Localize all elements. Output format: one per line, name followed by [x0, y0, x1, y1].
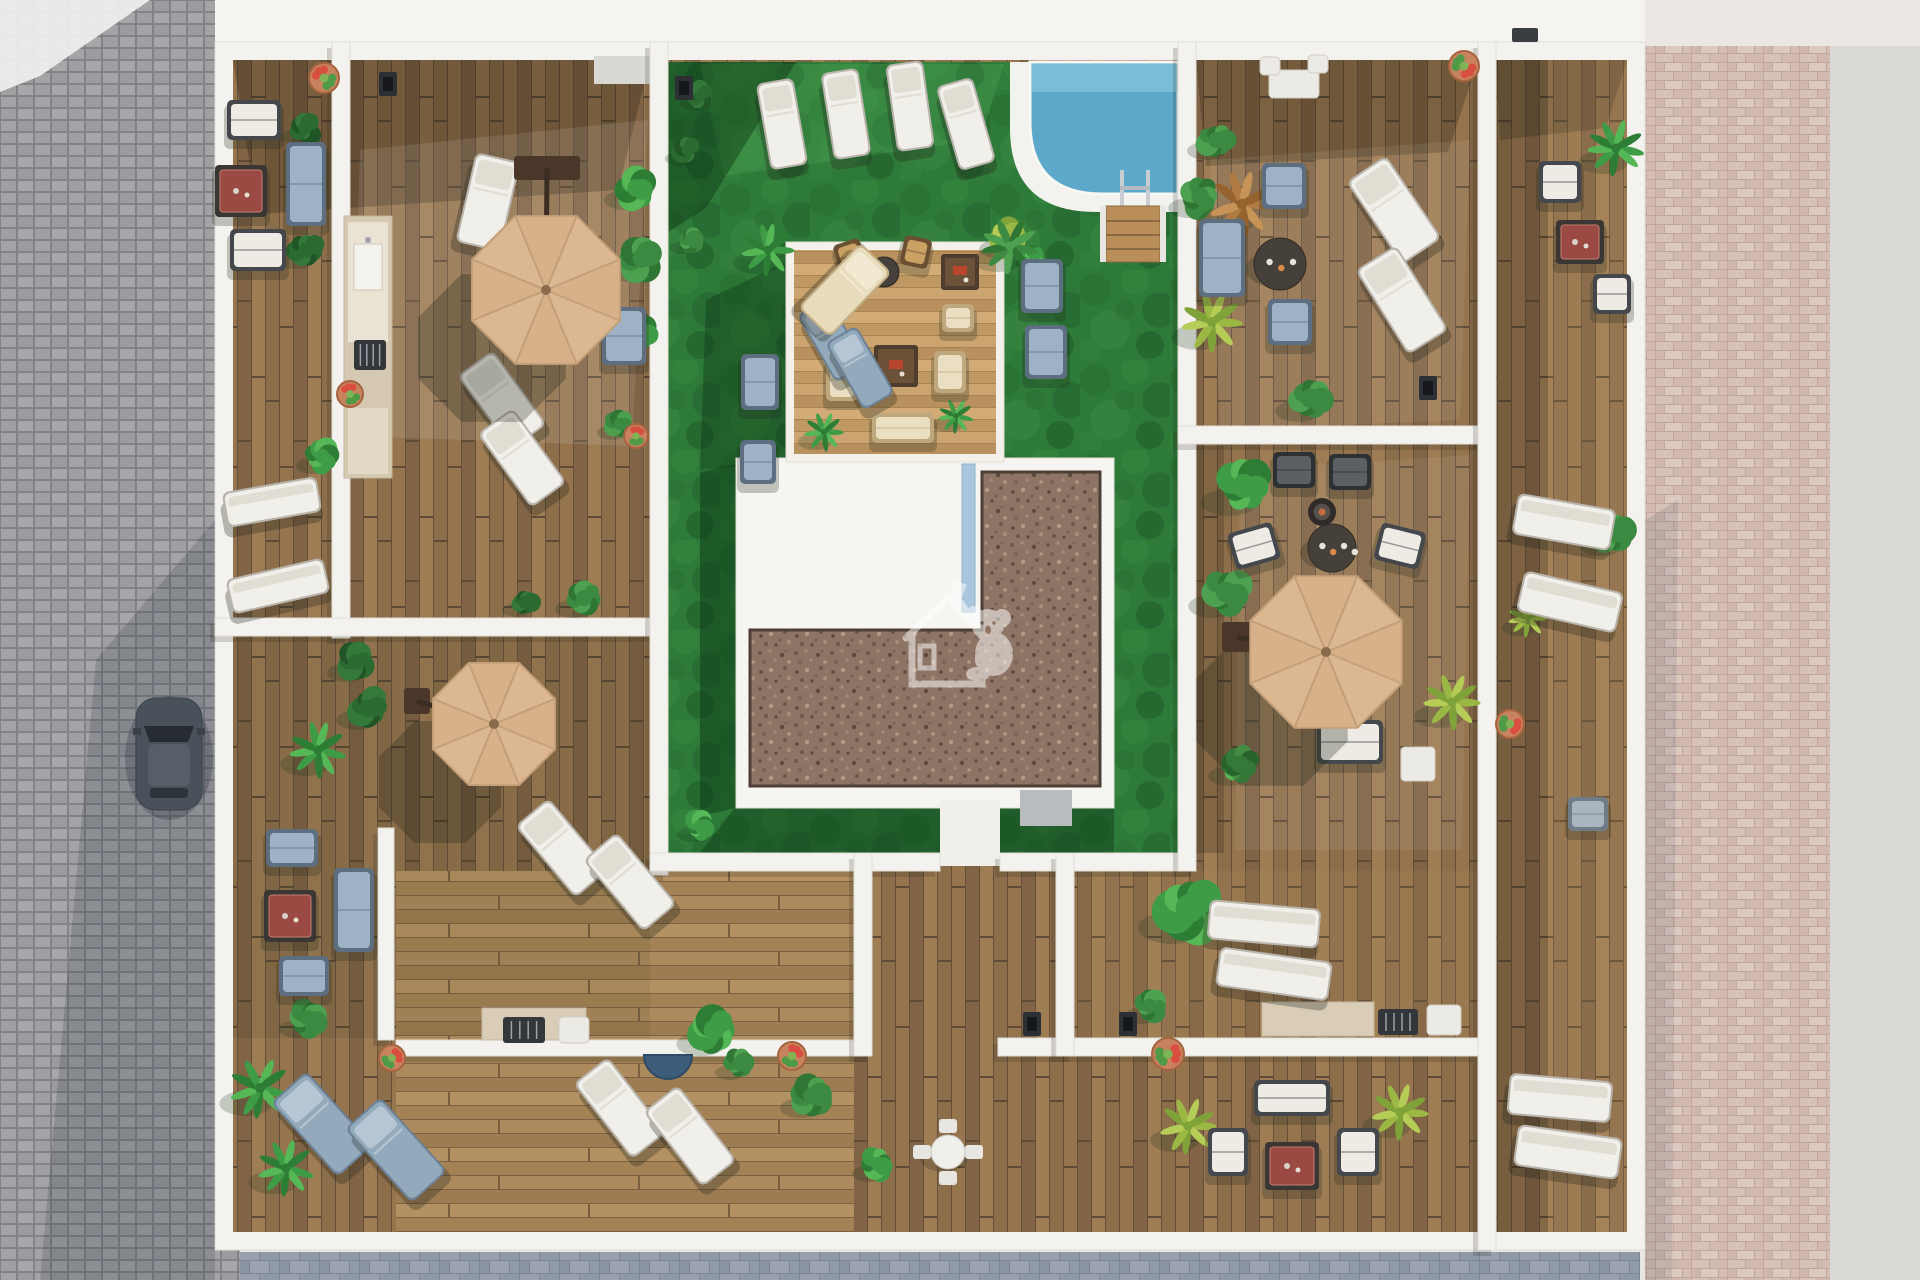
- bush-tuft: [614, 418, 627, 431]
- cup: [1319, 543, 1325, 549]
- outdoor-armchair: [1018, 259, 1066, 322]
- outdoor-sofa: [331, 868, 377, 961]
- divider-wall: [215, 618, 668, 636]
- dining-table: [931, 1135, 965, 1169]
- lounger-pillow: [891, 66, 922, 93]
- flowers: [395, 1055, 402, 1062]
- flowers: [795, 1050, 803, 1058]
- table-item: [282, 913, 288, 919]
- doormat: [1020, 790, 1072, 826]
- flowers: [320, 74, 329, 83]
- step-edge: [1106, 248, 1160, 250]
- outdoor-armchair: [737, 440, 779, 493]
- flower-pot: [337, 381, 363, 407]
- roof-vent: [1512, 28, 1538, 42]
- render-canvas: [0, 0, 1920, 1280]
- bush-tuft: [694, 90, 705, 101]
- bush-tuft: [694, 820, 707, 833]
- parked-car: [125, 696, 213, 820]
- palm-crown: [255, 1083, 265, 1093]
- outdoor-armchair: [1270, 452, 1318, 497]
- white-furniture: [1401, 747, 1435, 781]
- rooftop-aerial-render: [0, 0, 1920, 1280]
- flower-pot: [1152, 1038, 1184, 1070]
- flowers: [388, 1054, 396, 1062]
- bush-tuft: [298, 121, 312, 135]
- outdoor-armchair: [1334, 1128, 1382, 1185]
- flowers: [1456, 54, 1464, 62]
- shape: [348, 408, 388, 474]
- logo-koala-eye: [980, 621, 984, 625]
- cup: [1352, 549, 1358, 555]
- palm-crown: [1395, 1107, 1404, 1116]
- flowers: [346, 397, 353, 404]
- outdoor-armchair: [1536, 161, 1584, 212]
- bush-tuft: [732, 1058, 745, 1071]
- table-item: [294, 918, 299, 923]
- dining-chair: [965, 1145, 983, 1159]
- outdoor-armchair: [738, 354, 782, 419]
- bush-tuft: [1208, 132, 1224, 148]
- lawn-shadow: [700, 464, 736, 816]
- shape: [1561, 225, 1599, 259]
- cup: [1330, 549, 1336, 555]
- shape: [1378, 1009, 1418, 1035]
- outdoor-armchair: [1205, 1128, 1251, 1185]
- tray: [953, 266, 967, 275]
- bush-tuft: [682, 144, 695, 157]
- ember: [1319, 509, 1326, 516]
- fire-pit-table: [212, 165, 270, 226]
- table-item: [1284, 1163, 1290, 1169]
- wall-lamp: [1023, 1012, 1041, 1036]
- flowers: [381, 1056, 388, 1063]
- step-edge: [1106, 220, 1160, 222]
- parasol-pole: [541, 285, 551, 295]
- outdoor-armchair: [1265, 299, 1315, 354]
- bbq-grill: [354, 340, 386, 370]
- logo-koala-nose: [985, 626, 991, 635]
- bbq-grill: [1378, 1009, 1418, 1035]
- divider-wall: [1478, 42, 1496, 1250]
- bush-tuft: [632, 248, 651, 267]
- wall-lamp: [1419, 376, 1437, 400]
- divider-wall: [378, 828, 394, 1040]
- fire-pit-table: [1553, 220, 1607, 273]
- windshield: [144, 726, 194, 742]
- step-edge: [1106, 234, 1160, 236]
- dining-chair: [939, 1119, 957, 1133]
- flowers: [349, 384, 356, 391]
- bush-tuft: [518, 596, 530, 608]
- table-item: [245, 193, 250, 198]
- outdoor-sofa: [869, 413, 937, 452]
- logo-koala-eye: [992, 621, 996, 625]
- sun-lounger: [1202, 899, 1322, 959]
- bush-tuft: [298, 242, 313, 257]
- shape: [679, 81, 689, 95]
- sun-lounger: [1502, 1072, 1614, 1133]
- shape: [1270, 1147, 1314, 1185]
- divider-wall: [1056, 853, 1074, 1056]
- white-furniture: [1260, 57, 1280, 75]
- wall-lamp: [1119, 1012, 1137, 1036]
- palm-crown: [281, 1163, 290, 1172]
- outdoor-armchair: [1259, 163, 1309, 218]
- bush-tuft: [1176, 894, 1205, 923]
- palm-crown: [1183, 1121, 1192, 1130]
- bush-tuft: [1143, 999, 1157, 1013]
- cup: [1341, 543, 1347, 549]
- wall-lamp: [379, 72, 397, 96]
- side-mirror: [133, 728, 141, 735]
- flowers: [1163, 1049, 1173, 1059]
- ladder-rung: [1120, 186, 1150, 190]
- bush-tuft: [359, 699, 377, 717]
- outdoor-armchair: [227, 229, 289, 280]
- wall-lamp: [675, 76, 693, 100]
- bbq-grill: [503, 1017, 545, 1043]
- parasol-pole: [489, 719, 499, 729]
- white-furniture: [559, 1017, 589, 1043]
- palm-crown: [953, 413, 959, 419]
- kitchen-sink: [354, 244, 382, 290]
- outdoor-armchair: [224, 100, 284, 149]
- cup: [1266, 259, 1272, 265]
- palm-crown: [1005, 241, 1014, 250]
- white-furniture: [1427, 1005, 1461, 1035]
- rear-window: [150, 788, 188, 798]
- bush-tuft: [1300, 388, 1319, 407]
- table-item: [1572, 239, 1578, 245]
- flower-pot: [309, 63, 339, 93]
- fire-bowl: [1308, 498, 1336, 526]
- palm-crown: [1611, 143, 1620, 152]
- flowers: [346, 390, 354, 398]
- outdoor-sofa: [1196, 219, 1248, 306]
- sidewalk-right: [1830, 0, 1920, 1280]
- bush-tuft: [1191, 187, 1209, 205]
- shape: [383, 77, 393, 91]
- shape: [354, 340, 386, 370]
- palm-crown: [1237, 199, 1248, 210]
- lounger-pillow: [762, 84, 794, 112]
- outdoor-armchair: [1326, 454, 1374, 499]
- divider-wall: [650, 42, 668, 875]
- bush-tuft: [1232, 474, 1256, 498]
- flower-pot: [1496, 710, 1524, 738]
- flowers: [788, 1052, 796, 1060]
- outdoor-seat: [931, 351, 969, 402]
- bush-tuft: [348, 654, 364, 670]
- fire-pit-table: [1262, 1142, 1322, 1199]
- palm-crown: [1207, 317, 1217, 327]
- flowers: [1461, 70, 1469, 78]
- wooden-tray-table: [941, 254, 979, 290]
- flower-pot: [778, 1042, 806, 1070]
- divider-wall: [1178, 426, 1496, 444]
- pool-wood-steps: [1100, 206, 1166, 262]
- cup: [1278, 265, 1284, 271]
- outdoor-armchair: [1565, 797, 1611, 840]
- bush-tuft: [1216, 582, 1237, 603]
- outdoor-armchair: [1022, 325, 1070, 388]
- bush-tuft: [576, 590, 592, 606]
- shape: [269, 895, 311, 937]
- divider-wall: [1178, 42, 1196, 871]
- bush-tuft: [704, 1020, 725, 1041]
- street-top-right-band: [1645, 0, 1920, 46]
- bush-tuft: [684, 234, 695, 245]
- flowers: [632, 432, 639, 439]
- street-bottom-pavers: [240, 1252, 1640, 1280]
- shape: [1100, 206, 1106, 262]
- table-top: [1308, 524, 1356, 572]
- flowers: [1460, 62, 1469, 71]
- table-top: [1254, 238, 1306, 290]
- outdoor-armchair: [263, 829, 321, 876]
- car-roof: [148, 744, 190, 786]
- flower-pot: [379, 1045, 405, 1071]
- walkway-step: [940, 800, 1000, 866]
- lounger-pillow: [826, 74, 857, 102]
- side-mirror: [197, 728, 205, 735]
- palm-crown: [1447, 697, 1456, 706]
- flowers: [1155, 1047, 1164, 1056]
- bush-tuft: [315, 449, 329, 463]
- shape: [1423, 381, 1433, 395]
- divider-wall: [854, 853, 872, 1056]
- bush-tuft: [803, 1087, 821, 1105]
- outdoor-seat: [939, 304, 977, 341]
- outdoor-armchair: [276, 956, 332, 1005]
- table-item: [1296, 1168, 1301, 1173]
- dining-chair: [913, 1145, 931, 1159]
- shape: [1160, 206, 1166, 262]
- bush-tuft: [300, 1010, 316, 1026]
- bush-tuft: [627, 179, 645, 197]
- outdoor-armchair: [1590, 274, 1634, 323]
- palm-crown: [764, 246, 773, 255]
- outdoor-sofa: [1251, 1080, 1333, 1125]
- parasol-pole: [1321, 647, 1331, 657]
- flowers: [322, 82, 330, 90]
- dining-chair: [939, 1171, 957, 1185]
- shape: [220, 170, 262, 212]
- shadow: [1496, 60, 1548, 1232]
- tray: [889, 360, 903, 369]
- table-item: [233, 188, 239, 194]
- outdoor-sofa: [283, 142, 329, 235]
- kitchen-faucet: [365, 237, 371, 243]
- cup: [1290, 259, 1296, 265]
- bush-tuft: [871, 1157, 885, 1171]
- shape: [503, 1017, 545, 1043]
- table-item: [900, 372, 905, 377]
- flower-pot: [624, 424, 648, 448]
- flower-pot: [1449, 51, 1479, 81]
- divider-wall: [1000, 853, 1196, 871]
- table-item: [964, 278, 969, 283]
- palm-crown: [313, 745, 322, 754]
- flowers: [320, 66, 328, 74]
- shape: [1123, 1017, 1133, 1031]
- palm-crown: [821, 429, 827, 435]
- flowers: [1506, 720, 1514, 728]
- fire-pit-table: [261, 890, 319, 951]
- table-item: [1584, 244, 1589, 249]
- shape: [1027, 1017, 1037, 1031]
- entry-pad: [594, 56, 650, 84]
- divider-wall: [650, 853, 940, 871]
- white-furniture: [1308, 55, 1328, 73]
- logo-koala-leg: [966, 667, 990, 681]
- pool-water-highlight: [1032, 64, 1178, 92]
- street-top-band: [215, 0, 1645, 46]
